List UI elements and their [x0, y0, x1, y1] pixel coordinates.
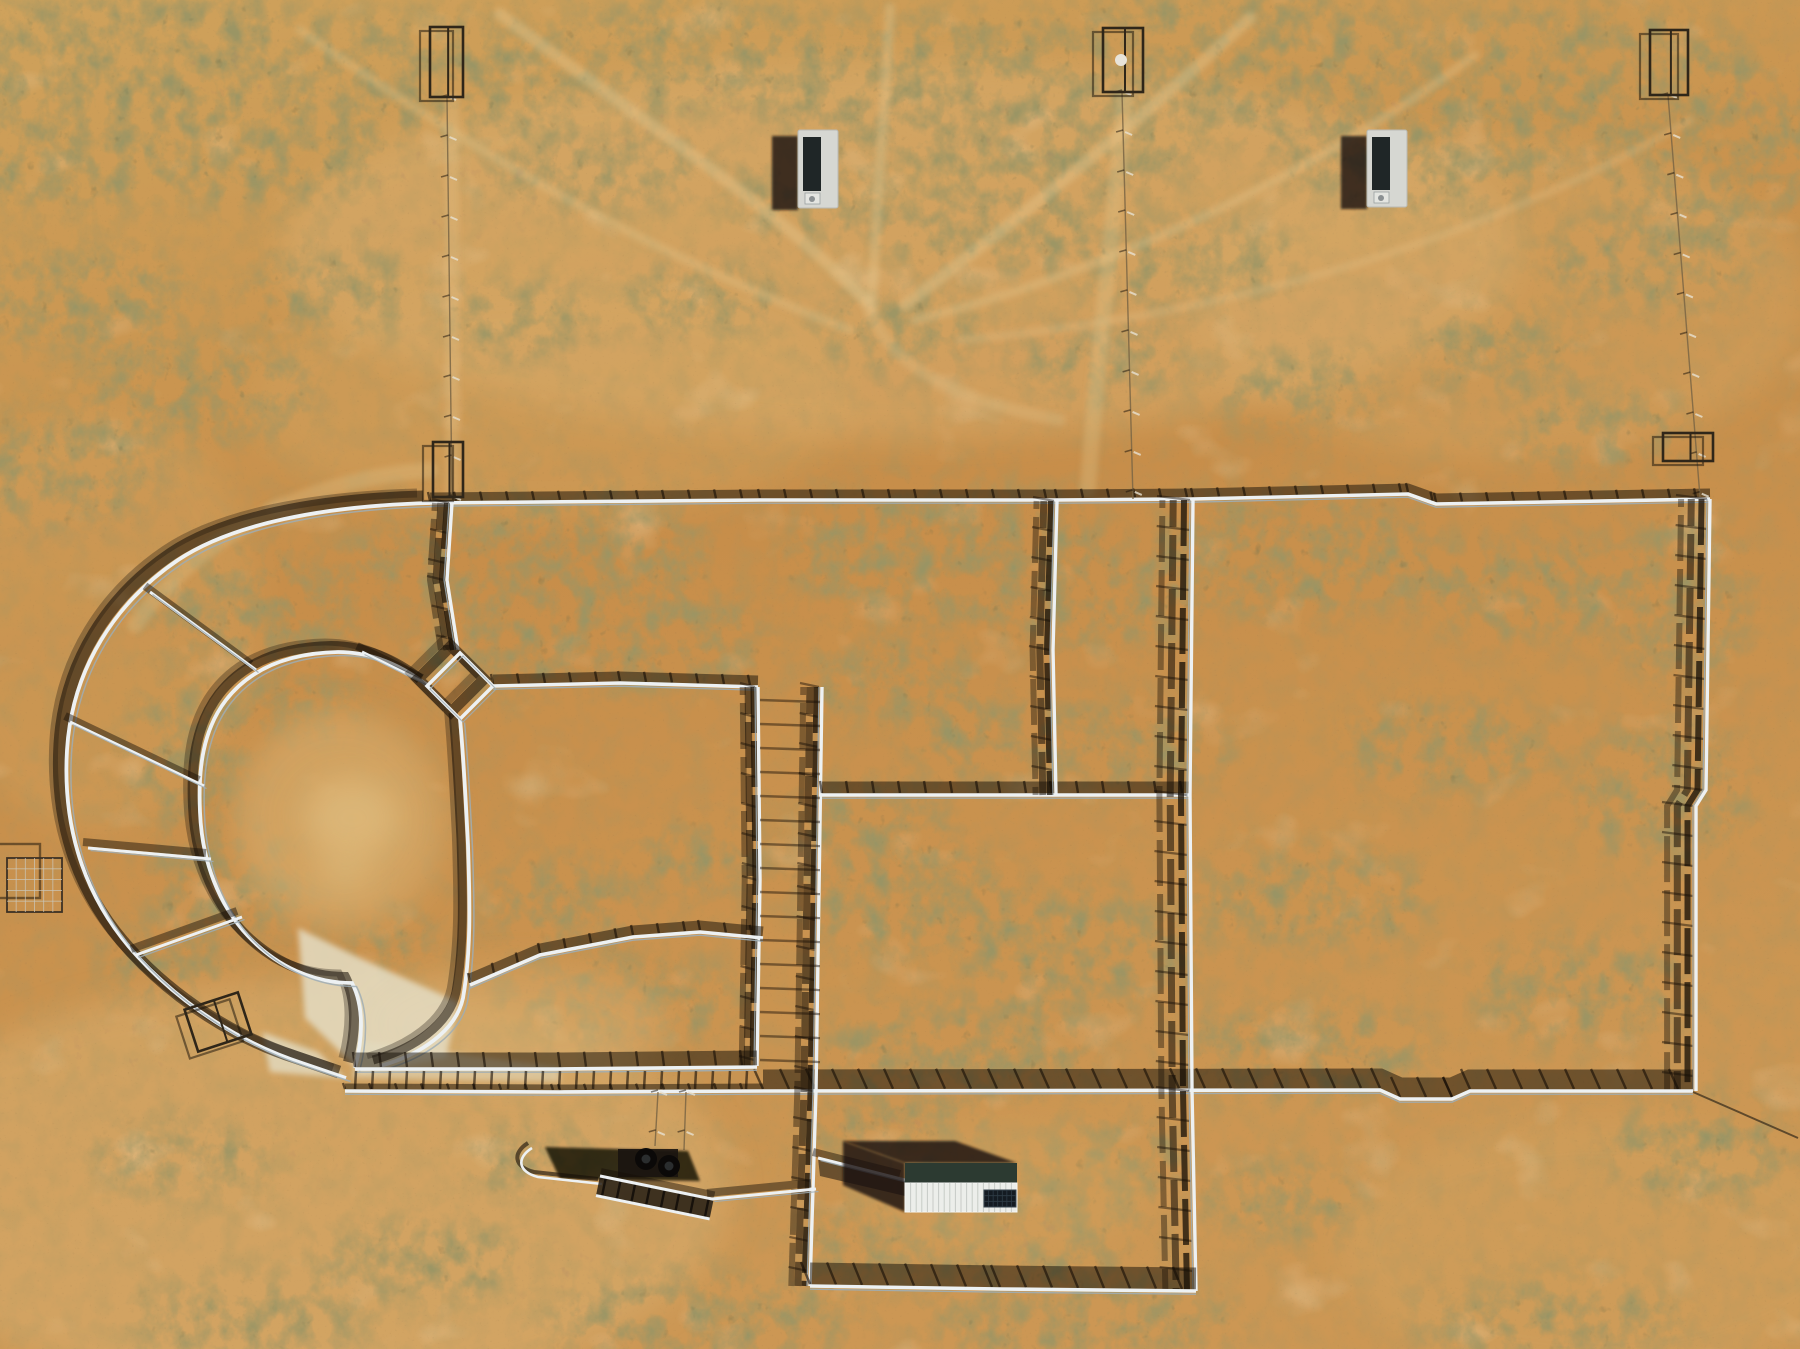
aerial-photograph — [0, 0, 1800, 1349]
scene-svg — [0, 0, 1800, 1349]
water-trough-west — [772, 130, 838, 210]
water-trough-east — [1341, 130, 1407, 209]
race-north-rail — [353, 1050, 757, 1072]
divider-fence-mid-east — [820, 781, 1190, 798]
lane-west-fence — [739, 683, 760, 1066]
